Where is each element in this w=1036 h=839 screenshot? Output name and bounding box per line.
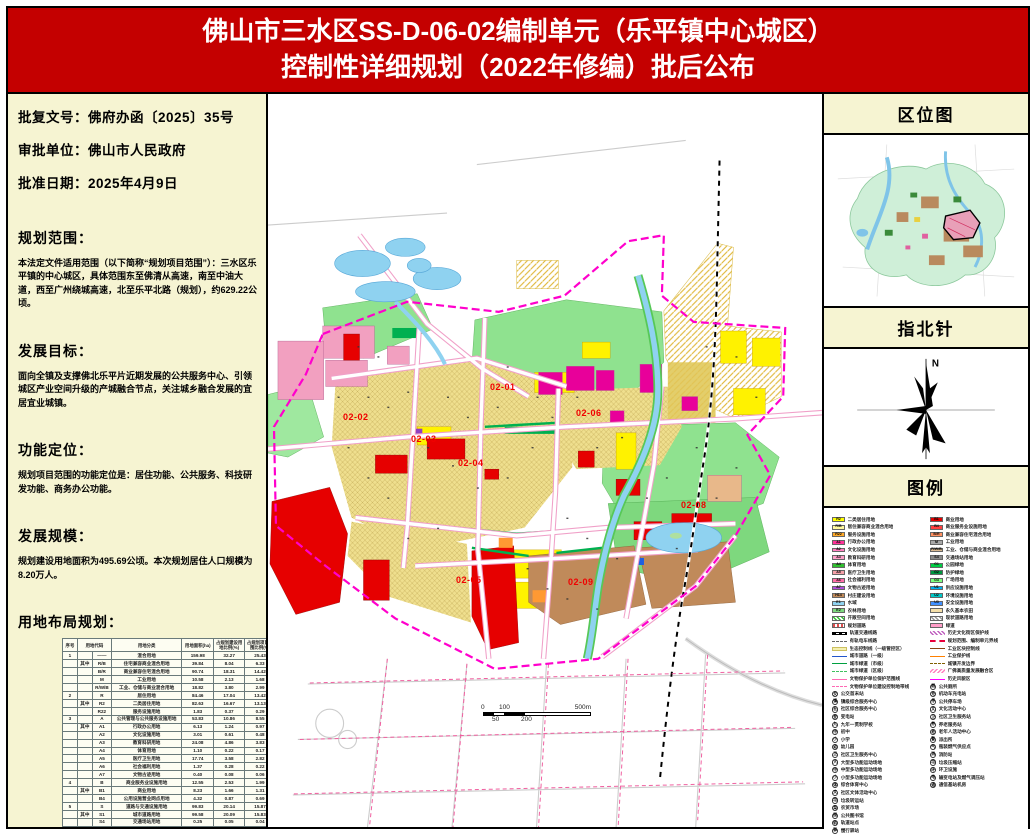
pond [646,522,722,552]
legend-icons-right: 厕 公共厕所 充 机动车充电站 停 [930,683,1024,789]
cell-category: 城市道路用地 [111,810,181,818]
legend-item: 城市绿道（区级） [832,668,926,676]
cell-qizhong: 其中 [77,787,92,795]
legend-label: 社会福利用地 [848,577,876,583]
text-section: 规划范围： 本法定文件适用范围（以下简称“规划项目范围”）：三水区乐平镇的中心城… [18,228,258,311]
landuse-code: A1 [836,541,841,545]
cell-qizhong [77,676,92,684]
landuse-code: A4 [836,563,841,567]
legend-label: 二类居住用地 [848,517,876,523]
legend-lines-left: 轨道交通线路 有轨电车线路 生态控制线（一级管控区） [832,630,926,691]
line-style-icon [930,640,945,642]
legend-item: B4 商业服务业设施用地 [930,523,1024,531]
map-unit-label: 02-06 [576,408,602,418]
legend-item: G2 防护绿地 [930,569,1024,577]
legend-item: 卫 社区卫生服务中心 [832,751,926,759]
table-row: A5 医疗卫生用地 17.74 3.58 2.82 [63,755,269,763]
legend-item: 中 初中 [832,728,926,736]
cell-pct-scope: 0.69 [245,795,268,803]
legend-item: A5 医疗卫生用地 [832,569,926,577]
cell-category: 居住用地 [111,692,181,700]
cell-pct-scope: 0.22 [245,763,268,771]
town-region [850,163,1005,285]
cell-category: 社会福利用地 [111,763,181,771]
cell-qizhong [77,652,92,660]
line-style-icon [832,679,847,680]
legend-label: 商业服务业设施用地 [946,524,987,530]
facility-symbol-icon: 垃 [930,759,936,765]
landuse-swatch-icon: A3 [832,555,845,560]
landuse-code: G2 [934,571,939,575]
landuse-swatch-icon: A2 [832,548,845,553]
landuse-code: G1 [934,563,939,567]
section-body: 规划项目范围的功能定位是：居住功能、公共服务、科技研发功能、商务办公功能。 [18,469,258,496]
cell-category: 工业用地 [111,676,181,684]
cell-code: R/W/B [92,684,111,692]
facility-symbol-icon: 驿 [832,828,838,834]
legend-label: 广场用地 [946,577,964,583]
cell-category: 公用设施用地 [111,826,181,827]
facility-symbol-icon: 社 [832,706,838,712]
info-value: 2025年4月9日 [88,176,178,191]
cell-pct-construction: 1.24 [214,723,245,731]
legend-label: 文物古迹用地 [848,585,876,591]
facility-symbol-icon: 文 [930,706,936,712]
legend-label: 镇级综合服务中心 [841,699,878,705]
landuse-swatch-icon: A4 [832,563,845,568]
table-row: 其中 S1 城市道路用地 99.58 20.09 15.83 [63,810,269,818]
legend-item: 现状道路用地 [930,615,1024,623]
table-row: A7 文物古迹用地 0.40 0.08 0.06 [63,771,269,779]
cell-pct-scope: 0.33 [245,826,268,827]
legend-label: 农贸市场 [841,805,859,811]
landuse-swatch-icon: A6 [832,578,845,583]
compass-svg: N [824,349,1028,465]
cell-category: 文物古迹用地 [111,771,181,779]
cell-area: 90.74 [182,668,214,676]
cell-pct-construction: 8.04 [214,660,245,668]
table-row: 3 A 公共管理与公共服务设施用地 53.83 10.86 8.55 [63,715,269,723]
cell-pct-construction: 18.31 [214,668,245,676]
cell-seq [63,771,78,779]
legend-item: E1 水域 [832,599,926,607]
col-header: 用地面积(ha) [182,639,214,652]
line-style-icon [832,632,847,635]
landuse-code: R/B [835,525,841,529]
table-row: A3 教育科研用地 24.08 4.86 3.83 [63,739,269,747]
section-heading: 功能定位： [18,440,258,460]
info-line: 批准日期：2025年4月9日 [18,172,258,192]
legend-label: 安全设施用地 [946,600,974,606]
landuse-swatch-icon: A5 [832,570,845,575]
landuse-swatch-icon: B4 [930,525,943,530]
facility-symbol-icon: 九 [832,722,838,728]
legend-label: 历史文化街区保护线 [948,630,989,636]
cell-area: 84.46 [182,692,214,700]
scale-tick: 500m [575,704,591,711]
cell-qizhong [77,707,92,715]
legend-label: 大型多功能运动场地 [841,760,882,766]
facility-symbol-icon: 轨 [832,820,838,826]
landuse-swatch-icon: G3 [930,578,943,583]
legend-item: 广佛高质量发展融合区 [930,668,1024,676]
scale-tick: 50 [492,716,499,723]
landuse-swatch-icon: A7 [832,586,845,591]
cell-area: 3.01 [182,731,214,739]
cell-pct-scope: 0.29 [245,707,268,715]
landuse-code: R/W/B [931,548,942,552]
text-section: 发展目标： 面向全镇及支撑佛北乐平片近期发展的公共服务中心、引领城区产业空间升级… [18,341,258,411]
cell-seq [63,747,78,755]
cell-category: 二类居住用地 [111,700,181,708]
cell-pct-construction: 0.28 [214,763,245,771]
cell-pct-construction: 17.04 [214,692,245,700]
cell-category: 医疗卫生用地 [111,755,181,763]
legend-item: 规划范围、编制单元界线 [930,637,1024,645]
cell-area: 39.84 [182,660,214,668]
section-body: 本法定文件适用范围（以下简称“规划项目范围”）：三水区乐平镇的中心城区，具体范围… [18,257,258,311]
line-style-icon [930,669,945,673]
cell-code: A6 [92,763,111,771]
facility-symbol-icon: 电 [930,775,936,781]
cell-category: 商业用地 [111,787,181,795]
legend-item: 工业保护线 [930,652,1024,660]
table-row: M 工业用地 10.58 2.13 1.68 [63,676,269,684]
cell-pct-construction: 10.86 [214,715,245,723]
cell-qizhong [77,779,92,787]
info-panel: 批复文号：佛府办函〔2025〕35号 审批单位：佛山市人民政府 批准日期：202… [8,94,268,827]
cell-qizhong [77,715,92,723]
facility-symbol-icon: 图 [832,813,838,819]
cell-code: B [92,779,111,787]
cell-code: S1 [92,810,111,818]
landuse-swatch-icon: M [930,540,943,545]
landuse-swatch-icon: R22 [832,532,845,537]
cell-seq [63,763,78,771]
text-sections: 规划范围： 本法定文件适用范围（以下简称“规划项目范围”）：三水区乐平镇的中心城… [18,228,258,583]
location-map-svg [828,139,1024,302]
landuse-swatch-icon [832,623,845,628]
line-style-icon [930,631,945,635]
legend-label: 工业区块控制线 [948,646,980,652]
landuse-swatch-icon: B/R [930,532,943,537]
legend-item: B1 商业用地 [930,516,1024,524]
table-row: B/R 商业兼容住宅混合用地 90.74 18.31 14.42 [63,668,269,676]
cell-pct-scope: 13.42 [245,692,268,700]
cell-seq [63,739,78,747]
table-row: 5 S 道路与交通设施用地 99.83 20.14 15.87 [63,802,269,810]
landuse-swatch-icon: U1 [930,586,943,591]
page-title: 佛山市三水区SS-D-06-02编制单元（乐平镇中心城区） 控制性详细规划（20… [8,8,1028,94]
landuse-code: A7 [836,586,841,590]
legend-label: 中型多功能运动场地 [841,767,882,773]
cell-seq [63,795,78,803]
legend-label: 绿道 [946,623,955,629]
info-label: 审批单位： [18,143,88,158]
compass-n-label: N [932,358,939,369]
legend-label: 公园绿地 [946,562,964,568]
cell-area: 17.74 [182,755,214,763]
map-unit-label: 02-03 [411,434,437,444]
cell-area: 0.40 [182,771,214,779]
table-row: 其中 B1 商业用地 8.23 1.66 1.31 [63,787,269,795]
legend-right-column: B1 商业用地 B4 商业服务业设施用地 B/R [930,516,1024,835]
legend-item: E2 农林用地 [832,607,926,615]
landuse-code: M [935,541,938,545]
cell-pct-scope: 1.31 [245,787,268,795]
col-header: 用地分类 [111,639,181,652]
cell-code: S4 [92,818,111,826]
cell-code: A5 [92,755,111,763]
legend-label: 初中 [841,729,850,735]
table-row: 2 R 居住用地 84.46 17.04 13.42 [63,692,269,700]
facility-symbol-icon: 菜 [832,805,838,811]
cell-qizhong: 其中 [77,660,92,668]
landuse-code: A6 [836,579,841,583]
legend-label: 文物保护单位建设控制地带线 [850,684,910,690]
cell-seq: 1 [63,652,78,660]
cell-pct-scope: 8.55 [245,715,268,723]
landuse-swatch-icon [930,608,943,613]
cell-pct-construction: 0.42 [214,826,245,827]
legend-item: 图 公共图书馆 [832,812,926,820]
cell-code: B/R [92,668,111,676]
cell-pct-construction: 2.13 [214,676,245,684]
legend-label: 公共图书馆 [841,813,864,819]
legend-label: 社区卫生服务中心 [841,752,878,758]
legend-item: 九 九年一贯制学校 [832,721,926,729]
legend-item: S4 交通场站用地 [930,554,1024,562]
legend-label: 永久基本农田 [946,608,974,614]
planning-map: 02-01 02-02 02-03 02-04 02-05 02-06 02-0… [268,94,824,827]
cell-code: A4 [92,747,111,755]
cell-category: 混合用地 [111,652,181,660]
landuse-swatch-icon: G1 [930,563,943,568]
line-style-icon [832,663,847,664]
legend-label: 医疗卫生用地 [848,570,876,576]
legend-landuse-right: B1 商业用地 B4 商业服务业设施用地 B/R [930,516,1024,630]
cell-pct-construction: 16.67 [214,700,245,708]
legend-item: 文 文化活动中心 [930,706,1024,714]
cell-area: 4.32 [182,795,214,803]
legend-label: 开敞空间用地 [848,615,876,621]
landuse-table: 序号 用地代码 用地分类 用地面积(ha) 占规划建设用地比例(%) 占规划项目… [62,638,268,827]
legend-item: A4 体育用地 [832,561,926,569]
legend-title: 图例 [824,467,1028,508]
facility-symbol-icon: 气 [930,744,936,750]
legend-label: 历史风貌区 [948,676,971,682]
cell-seq [63,723,78,731]
table-row: 其中 R2 二类居住用地 82.63 16.67 13.13 [63,700,269,708]
legend-item: 轨道交通线路 [832,630,926,638]
legend-item: A3 教育科研用地 [832,554,926,562]
cell-pct-construction: 20.09 [214,810,245,818]
table-row: A2 文化设施用地 3.01 0.61 0.48 [63,731,269,739]
compass: N [824,349,1028,467]
cell-qizhong [77,802,92,810]
right-panel: 区位图 [824,94,1028,827]
facility-symbol-icon: 充 [930,691,936,697]
cell-area: 1.83 [182,707,214,715]
facility-symbol-icon: 变 [832,714,838,720]
legend-item: 绿道 [930,622,1024,630]
legend-label: 行政办公用地 [848,539,876,545]
text-section: 发展规模： 规划建设用地面积为495.69公顷。本次规划居住人口规模为8.20万… [18,526,258,582]
legend-label: 广佛高质量发展融合区 [948,668,994,674]
facility-symbol-icon: 垃 [832,797,838,803]
legend-label: 社区文体活动中心 [841,790,878,796]
legend-item: 交 公交首末站 [832,690,926,698]
facility-symbol-icon: 通 [930,782,936,788]
legend-item: A2 文化设施用地 [832,546,926,554]
line-style-icon [832,671,847,672]
cell-category: 公共管理与公共服务设施用地 [111,715,181,723]
map-unit-label: 02-01 [490,382,516,392]
cell-seq: 6 [63,826,78,827]
landuse-code: U3 [934,601,939,605]
legend-item: 厕 公共厕所 [930,683,1024,691]
landuse-code: B1 [934,518,939,522]
legend-label: 养老服务站 [939,722,962,728]
landuse-swatch-icon: S4 [930,555,943,560]
facility-symbol-icon: 交 [832,691,838,697]
cell-pct-construction: 4.86 [214,739,245,747]
landuse-swatch-icon: U2 [930,593,943,598]
legend-item: 开敞空间用地 [832,615,926,623]
legend-label: 城市绿道（区级） [850,668,887,674]
cell-code: B4 [92,795,111,803]
landuse-swatch-icon [930,616,943,621]
section-heading: 规划范围： [18,228,258,248]
cell-category: 交通场站用地 [111,818,181,826]
line-style-icon [930,648,945,649]
line-style-icon [930,663,945,664]
col-header: 序号 [63,639,78,652]
cell-area: 82.63 [182,700,214,708]
cell-pct-scope: 0.48 [245,731,268,739]
legend-item: 规划道路 [832,622,926,630]
cell-pct-construction: 3.58 [214,755,245,763]
landuse-code: U2 [934,594,939,598]
legend-label: 小型多功能运动场地 [841,775,882,781]
landuse-swatch-icon: B1 [930,517,943,522]
col-header: 占规划项目范围比例(%) [245,639,268,652]
cell-seq [63,787,78,795]
cell-area: 99.58 [182,810,214,818]
facility-symbol-icon: 卫 [832,752,838,758]
table-row: 4 B 商业服务业设施用地 12.55 2.53 1.99 [63,779,269,787]
cell-seq [63,700,78,708]
legend-label: 通信基站机房 [939,782,967,788]
legend-item: 轨 轨道站点 [832,820,926,828]
landuse-swatch-icon: R2 [832,517,845,522]
facility-symbol-icon: 幼 [832,744,838,750]
cell-pct-scope: 0.06 [245,771,268,779]
scale-tick: 100 [499,704,510,711]
facility-symbol-icon: 卫 [930,714,936,720]
cell-seq [63,731,78,739]
legend-label: 城镇开发边界 [948,661,976,667]
legend-label: 老年人活动中心 [939,729,971,735]
legend-item: 文 社区文体活动中心 [832,789,926,797]
legend-item: M 工业用地 [930,539,1024,547]
legend-label: 工业保护线 [948,653,971,659]
cell-pct-scope: 2.99 [245,684,268,692]
legend-item: A7 文物古迹用地 [832,584,926,592]
legend-item: 充 机动车充电站 [930,690,1024,698]
cell-area: 1.37 [182,763,214,771]
legend-label: 输变电站及燃气调压站 [939,775,985,781]
table-row: 1 —— 混合用地 159.98 32.27 25.43 [63,652,269,660]
scale-tick: 200 [521,716,532,723]
cell-code: S [92,802,111,810]
legend-item: 小 小型多功能运动场地 [832,774,926,782]
cell-area: 12.55 [182,779,214,787]
cell-category: 道路与交通设施用地 [111,802,181,810]
legend-label: 九年一贯制学校 [841,722,873,728]
landuse-code: A2 [836,548,841,552]
cell-qizhong [77,692,92,700]
page: 佛山市三水区SS-D-06-02编制单元（乐平镇中心城区） 控制性详细规划（20… [0,0,1036,835]
map-unit-label: 02-04 [458,458,484,468]
line-style-icon [930,679,945,680]
section-heading: 发展目标： [18,341,258,361]
info-line: 批复文号：佛府办函〔2025〕35号 [18,106,258,126]
cell-pct-construction: 2.53 [214,779,245,787]
cell-pct-scope: 13.13 [245,700,268,708]
map-unit-label: 02-05 [456,575,482,585]
legend-label: 社区卫生服务站 [939,714,971,720]
landuse-swatch-icon: R/W/B [930,548,943,553]
legend-item: 老 老年人活动中心 [930,728,1024,736]
legend-item: U2 环境设施用地 [930,592,1024,600]
legend-item: 小 小学 [832,736,926,744]
legend-label: 农林用地 [848,608,866,614]
legend-icons-left: 交 公交首末站 镇 镇级综合服务中心 社 [832,690,926,834]
landuse-code: A5 [836,571,841,575]
cell-pct-scope: 3.83 [245,739,268,747]
facility-symbol-icon: 文 [832,790,838,796]
cell-pct-scope: 2.82 [245,755,268,763]
legend-landuse-left: R2 二类居住用地 R/B 居住兼容商业混合用地 R22 [832,516,926,630]
legend-label: 城市道路（一级） [850,653,887,659]
cell-area: 24.08 [182,739,214,747]
cell-category: 文化设施用地 [111,731,181,739]
cell-pct-scope: 6.33 [245,660,268,668]
legend-item: G1 公园绿地 [930,561,1024,569]
legend-item: 垃 垃圾转运站 [832,797,926,805]
line-style-icon [832,647,847,651]
legend-label: 轨道交通线路 [850,630,878,636]
landuse-swatch-icon: H14 [832,593,845,598]
map-unit-label: 02-09 [568,577,594,587]
cell-pct-construction: 0.08 [214,771,245,779]
facility-symbol-icon: 小 [832,737,838,743]
cell-seq [63,676,78,684]
cell-qizhong: 其中 [77,700,92,708]
cell-qizhong [77,731,92,739]
cell-pct-scope: 14.42 [245,668,268,676]
legend-label: 规划范围、编制单元界线 [948,638,999,644]
legend-label: 教育科研用地 [848,555,876,561]
legend-item: 生态控制线（一级管控区） [832,645,926,653]
landuse-swatch-icon: U3 [930,601,943,606]
table-row: 其中 R/B 住宅兼容商业混合用地 39.84 8.04 6.33 [63,660,269,668]
legend-item: R/W/B 工业、仓储与商业混合用地 [930,546,1024,554]
legend-item: 镇 镇级综合服务中心 [832,698,926,706]
cell-seq: 2 [63,692,78,700]
facility-symbol-icon: 厕 [930,684,936,690]
